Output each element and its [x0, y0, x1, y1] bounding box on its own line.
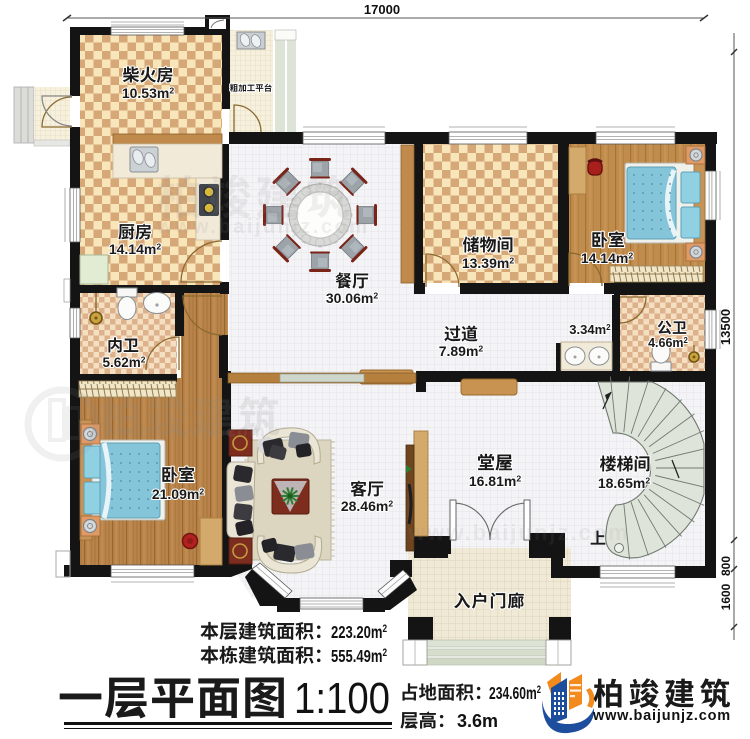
svg-text:14.14m2: 14.14m2: [109, 241, 161, 257]
svg-text:10.53m2: 10.53m2: [122, 85, 174, 101]
svg-text:16.81m2: 16.81m2: [469, 473, 521, 489]
svg-text:21.09m2: 21.09m2: [152, 486, 204, 502]
svg-text:13500: 13500: [718, 309, 733, 345]
svg-text:3.6m: 3.6m: [457, 711, 498, 731]
svg-text:1600: 1600: [719, 583, 733, 610]
svg-text:www.baijunjz.com: www.baijunjz.com: [592, 708, 731, 724]
svg-text:5.62m2: 5.62m2: [103, 355, 146, 370]
svg-text:www.baijunjz.com: www.baijunjz.com: [156, 216, 370, 238]
svg-text:7.89m2: 7.89m2: [439, 343, 484, 359]
svg-text:3.34m2: 3.34m2: [569, 322, 611, 337]
svg-text:555.49m2: 555.49m2: [331, 646, 387, 666]
svg-text:28.46m2: 28.46m2: [341, 498, 393, 514]
svg-text:13.39m2: 13.39m2: [462, 255, 514, 271]
svg-text:1:100: 1:100: [294, 674, 390, 723]
svg-text:www.baijunjz.com: www.baijunjz.com: [87, 422, 267, 441]
svg-text:17000: 17000: [364, 2, 400, 17]
svg-text:800: 800: [719, 556, 733, 576]
svg-text:www.baijunjz.com: www.baijunjz.com: [407, 520, 630, 545]
svg-text:14.14m2: 14.14m2: [581, 250, 633, 266]
svg-text:234.60m2: 234.60m2: [489, 683, 541, 703]
svg-text:223.20m2: 223.20m2: [331, 622, 387, 642]
svg-text:30.06m2: 30.06m2: [326, 290, 378, 306]
svg-text:4.66m2: 4.66m2: [648, 336, 688, 350]
svg-text:18.65m2: 18.65m2: [598, 475, 650, 491]
